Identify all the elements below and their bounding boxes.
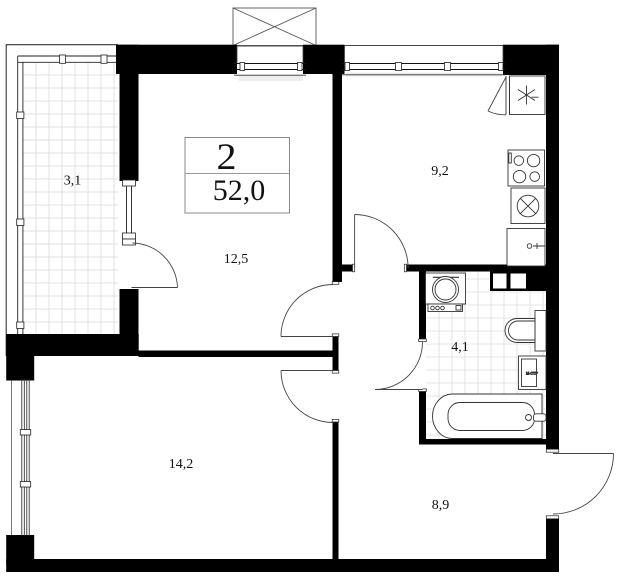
svg-text:12,5: 12,5 bbox=[224, 252, 249, 267]
svg-text:4,1: 4,1 bbox=[451, 340, 469, 355]
svg-text:9,2: 9,2 bbox=[431, 164, 449, 179]
svg-text:2: 2 bbox=[217, 137, 237, 178]
svg-text:8,9: 8,9 bbox=[432, 498, 450, 513]
svg-text:М-СТР: М-СТР bbox=[526, 372, 538, 376]
svg-text:3,1: 3,1 bbox=[64, 174, 82, 189]
svg-text:14,2: 14,2 bbox=[169, 457, 194, 472]
svg-text:52,0: 52,0 bbox=[213, 174, 266, 207]
